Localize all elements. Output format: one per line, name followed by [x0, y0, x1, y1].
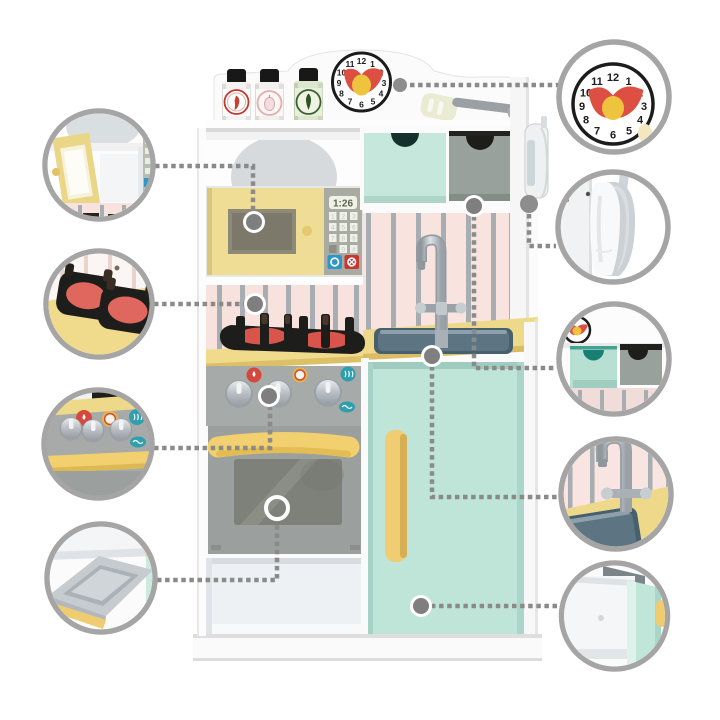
svg-text:7: 7 — [348, 97, 353, 107]
svg-text:#: # — [352, 247, 356, 254]
svg-text:8: 8 — [339, 89, 344, 99]
svg-text:4: 4 — [331, 225, 335, 232]
svg-text:3: 3 — [352, 214, 356, 221]
svg-text:1: 1 — [370, 59, 375, 69]
svg-text:7: 7 — [594, 126, 600, 138]
svg-text:6: 6 — [610, 130, 616, 142]
svg-text:1: 1 — [331, 214, 335, 221]
svg-text:12: 12 — [607, 72, 619, 84]
svg-text:11: 11 — [346, 59, 355, 69]
svg-text:2: 2 — [341, 214, 345, 221]
svg-text:6: 6 — [359, 100, 364, 110]
svg-text:5: 5 — [626, 126, 632, 138]
svg-text:9: 9 — [352, 236, 356, 243]
svg-text:4: 4 — [379, 89, 384, 99]
svg-text:9: 9 — [337, 78, 342, 88]
svg-text:8: 8 — [341, 236, 345, 243]
svg-text:11: 11 — [591, 76, 603, 88]
svg-text:9: 9 — [579, 101, 585, 113]
svg-text:1:26: 1:26 — [333, 199, 353, 210]
svg-text:5: 5 — [341, 225, 345, 232]
svg-text:1: 1 — [625, 76, 631, 88]
svg-text:3: 3 — [382, 78, 387, 88]
svg-text:5: 5 — [371, 97, 376, 107]
svg-text:3: 3 — [641, 101, 647, 113]
svg-text:0: 0 — [341, 247, 345, 254]
svg-text:7: 7 — [331, 236, 335, 243]
svg-text:12: 12 — [357, 56, 367, 66]
svg-text:6: 6 — [352, 225, 356, 232]
svg-text:8: 8 — [583, 115, 589, 127]
